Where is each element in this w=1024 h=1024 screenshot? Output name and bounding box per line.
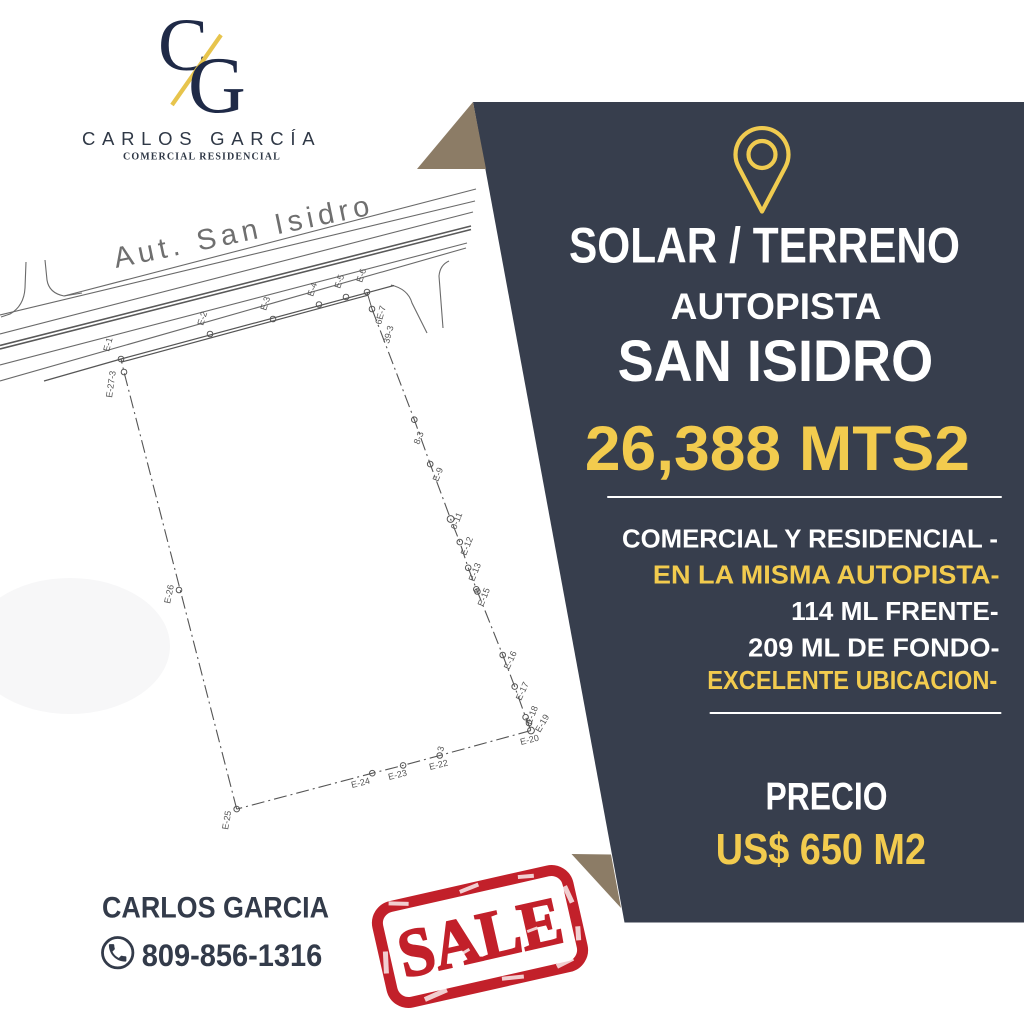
svg-text:E-23: E-23	[387, 768, 408, 782]
svg-text:0-11: 0-11	[449, 511, 465, 531]
svg-text:EN LA MISMA AUTOPISTA-: EN LA MISMA AUTOPISTA-	[653, 560, 1000, 590]
svg-text:8-3: 8-3	[412, 430, 426, 446]
svg-text:E-20: E-20	[519, 733, 540, 747]
svg-text:SOLAR / TERRENO: SOLAR / TERRENO	[569, 218, 960, 274]
svg-text:3: 3	[435, 745, 446, 752]
svg-text:E-17: E-17	[514, 680, 531, 701]
svg-text:CARLOS GARCÍA: CARLOS GARCÍA	[82, 128, 321, 149]
svg-text:E-9: E-9	[431, 466, 446, 483]
svg-text:E-27-3: E-27-3	[104, 370, 118, 398]
svg-text:26,388 MTS2: 26,388 MTS2	[585, 414, 970, 484]
svg-text:E-24: E-24	[350, 776, 371, 790]
svg-text:E-4: E-4	[305, 281, 319, 297]
svg-text:EXCELENTE UBICACION-: EXCELENTE UBICACION-	[707, 665, 997, 695]
svg-text:SAN ISIDRO: SAN ISIDRO	[618, 329, 934, 394]
svg-text:CARLOS GARCIA: CARLOS GARCIA	[102, 892, 329, 925]
svg-text:E-3: E-3	[258, 295, 272, 311]
svg-text:PRECIO: PRECIO	[766, 776, 888, 819]
svg-text:G: G	[188, 42, 246, 130]
svg-text:209 ML DE FONDO-: 209 ML DE FONDO-	[748, 632, 999, 662]
svg-text:6E-7: 6E-7	[373, 305, 388, 326]
svg-text:Aut. San Isidro: Aut. San Isidro	[111, 189, 377, 275]
svg-text:E-22: E-22	[428, 758, 449, 772]
svg-text:AUTOPISTA: AUTOPISTA	[671, 286, 882, 327]
svg-text:US$ 650 M2: US$ 650 M2	[716, 825, 926, 874]
svg-text:E-15: E-15	[476, 586, 492, 607]
svg-text:39-3: 39-3	[381, 325, 395, 345]
svg-text:E-26: E-26	[162, 584, 176, 605]
svg-text:E-5: E-5	[332, 273, 346, 289]
svg-text:E-1: E-1	[101, 336, 114, 352]
svg-text:COMERCIAL Y RESIDENCIAL -: COMERCIAL Y RESIDENCIAL -	[622, 523, 998, 553]
svg-text:E-2: E-2	[195, 310, 209, 326]
svg-text:E-12: E-12	[459, 535, 475, 556]
svg-text:E-25: E-25	[220, 810, 233, 830]
svg-text:E-13: E-13	[467, 561, 483, 582]
svg-text:809-856-1316: 809-856-1316	[142, 937, 323, 973]
svg-text:E-6: E-6	[354, 267, 368, 283]
svg-text:COMERCIAL RESIDENCIAL: COMERCIAL RESIDENCIAL	[123, 151, 281, 162]
svg-text:114 ML FRENTE-: 114 ML FRENTE-	[791, 596, 999, 626]
